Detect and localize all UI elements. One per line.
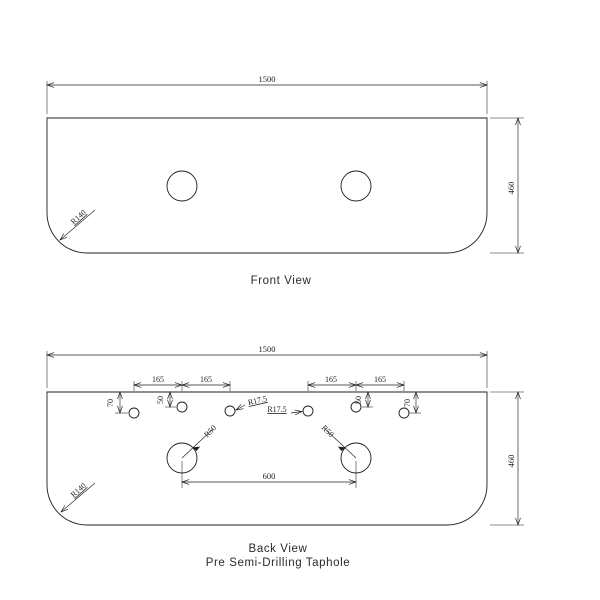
back-view-caption: Back View: [249, 543, 308, 555]
back-taphole-3: [225, 406, 235, 416]
back-height-label: 460: [506, 455, 516, 468]
back-view-subcaption: Pre Semi-Drilling Taphole: [206, 557, 351, 569]
back-right-spacing-dimensions: 165 165: [308, 375, 404, 391]
front-width-dimension: 1500: [47, 74, 487, 114]
front-view-caption: Front View: [251, 275, 312, 287]
basin-spacing-label: 600: [263, 471, 276, 481]
offset-70-left-label: 70: [106, 399, 115, 407]
front-taphole-left: [167, 171, 197, 201]
back-height-dimension: 460: [490, 392, 524, 525]
front-view: 1500 460 R140 Front View: [47, 74, 524, 287]
back-offset-70-right: 70: [403, 392, 421, 413]
front-corner-radius-label: R140: [69, 208, 88, 226]
back-basin-radius-callout-right: R50: [320, 423, 356, 458]
spacing-label-3: 165: [325, 375, 337, 384]
taphole-radius-label-2: R17.5: [267, 405, 286, 414]
spacing-label-2: 165: [200, 375, 212, 384]
back-width-label: 1500: [259, 344, 276, 354]
back-taphole-1: [129, 408, 139, 418]
offset-70-right-label: 70: [403, 399, 412, 407]
offset-50-right-label: 50: [354, 396, 363, 404]
offset-50-left-label: 50: [156, 396, 165, 404]
back-corner-radius-label: R140: [69, 481, 88, 499]
back-taphole-2: [177, 402, 187, 412]
spacing-label-1: 165: [152, 375, 164, 384]
back-corner-radius-callout: R140: [61, 481, 95, 512]
back-taphole-radius-callout-2: R17.5: [267, 405, 302, 414]
back-view: 1500 460 165 165 165 165: [47, 344, 524, 569]
technical-drawing-page: 1500 460 R140 Front View: [0, 0, 600, 600]
back-basin-radius-callout-left: R50: [182, 423, 218, 458]
spacing-label-4: 165: [374, 375, 386, 384]
front-height-dimension: 460: [490, 118, 524, 253]
front-view-outline: [47, 118, 487, 253]
front-width-label: 1500: [259, 74, 276, 84]
back-offset-50-left: 50: [156, 392, 176, 407]
back-taphole-radius-callout-1: R17.5: [236, 394, 268, 410]
back-offset-50-right: 50: [354, 392, 373, 407]
back-taphole-6: [399, 408, 409, 418]
back-width-dimension: 1500: [47, 344, 487, 388]
front-taphole-right: [341, 171, 371, 201]
taphole-radius-label-1: R17.5: [247, 394, 268, 407]
front-height-label: 460: [506, 182, 516, 195]
back-left-spacing-dimensions: 165 165: [134, 375, 230, 391]
back-offset-70-left: 70: [106, 392, 128, 413]
technical-drawing-canvas: 1500 460 R140 Front View: [0, 0, 600, 600]
front-corner-radius-callout: R140: [60, 208, 95, 240]
back-taphole-4: [303, 406, 313, 416]
back-basin-spacing-dimension: 600: [182, 461, 356, 488]
